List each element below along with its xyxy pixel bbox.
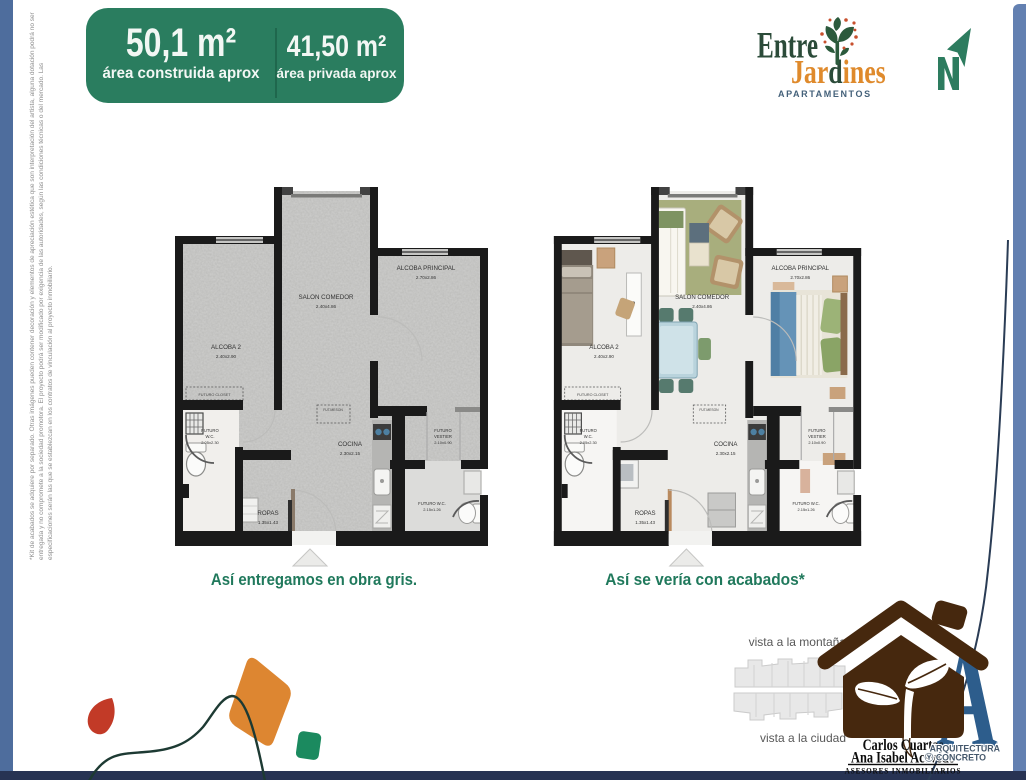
svg-text:2.10x0.90: 2.10x0.90 (434, 440, 452, 445)
svg-text:FUTURO: FUTURO (580, 428, 598, 433)
svg-text:1.35x1.43: 1.35x1.43 (635, 520, 655, 525)
svg-text:2.70x2.86: 2.70x2.86 (416, 275, 437, 280)
svg-text:ALCOBA PRINCIPAL: ALCOBA PRINCIPAL (771, 265, 829, 272)
svg-text:SALON COMEDOR: SALON COMEDOR (298, 294, 354, 301)
svg-text:2.10x0.90: 2.10x0.90 (808, 440, 826, 445)
svg-text:2.40x2.90: 2.40x2.90 (216, 354, 237, 359)
svg-text:2.15x1.26: 2.15x1.26 (798, 507, 816, 512)
svg-text:1.35x1.43: 1.35x1.43 (258, 520, 279, 525)
svg-text:2.05x2.30: 2.05x2.30 (580, 440, 598, 445)
svg-text:ALCOBA 2: ALCOBA 2 (589, 344, 619, 351)
svg-text:W.C.: W.C. (205, 434, 214, 439)
svg-text:2.70x2.86: 2.70x2.86 (790, 275, 810, 280)
svg-text:FUTURO CLOSET: FUTURO CLOSET (198, 393, 231, 397)
svg-text:FUT.MESON: FUT.MESON (323, 408, 343, 412)
svg-text:2.40x4.86: 2.40x4.86 (316, 304, 337, 309)
svg-text:ROPAS: ROPAS (635, 510, 656, 517)
svg-text:2.30x2.15: 2.30x2.15 (340, 451, 361, 456)
svg-text:Ⓨ CONCRETO: Ⓨ CONCRETO (925, 752, 987, 763)
svg-text:FUTURO: FUTURO (434, 428, 452, 433)
svg-text:FUTURO: FUTURO (201, 428, 219, 433)
svg-text:ALCOBA 2: ALCOBA 2 (211, 344, 241, 351)
svg-text:FUTURO: FUTURO (808, 428, 826, 433)
svg-text:VESTIER: VESTIER (434, 434, 452, 439)
svg-text:2.40x2.90: 2.40x2.90 (594, 354, 614, 359)
svg-text:FUTURO W.C.: FUTURO W.C. (793, 501, 820, 506)
svg-text:2.40x4.86: 2.40x4.86 (692, 304, 712, 309)
svg-text:VESTIER: VESTIER (808, 434, 826, 439)
svg-text:ROPAS: ROPAS (257, 510, 278, 517)
svg-text:ALCOBA PRINCIPAL: ALCOBA PRINCIPAL (397, 265, 456, 272)
svg-text:2.30x2.15: 2.30x2.15 (716, 451, 736, 456)
svg-text:FUTURO W.C.: FUTURO W.C. (418, 501, 446, 506)
svg-text:2.05x2.30: 2.05x2.30 (201, 440, 219, 445)
svg-text:COCINA: COCINA (714, 441, 739, 448)
svg-text:2.15x1.26: 2.15x1.26 (423, 507, 441, 512)
svg-text:ASESORES INMOBILIARIOS: ASESORES INMOBILIARIOS (845, 766, 962, 776)
svg-text:SALON COMEDOR: SALON COMEDOR (675, 294, 730, 301)
svg-text:FUTURO CLOSET: FUTURO CLOSET (577, 393, 609, 397)
svg-text:W.C.: W.C. (584, 434, 593, 439)
svg-text:FUT.MESON: FUT.MESON (699, 408, 719, 412)
svg-text:COCINA: COCINA (338, 441, 363, 448)
